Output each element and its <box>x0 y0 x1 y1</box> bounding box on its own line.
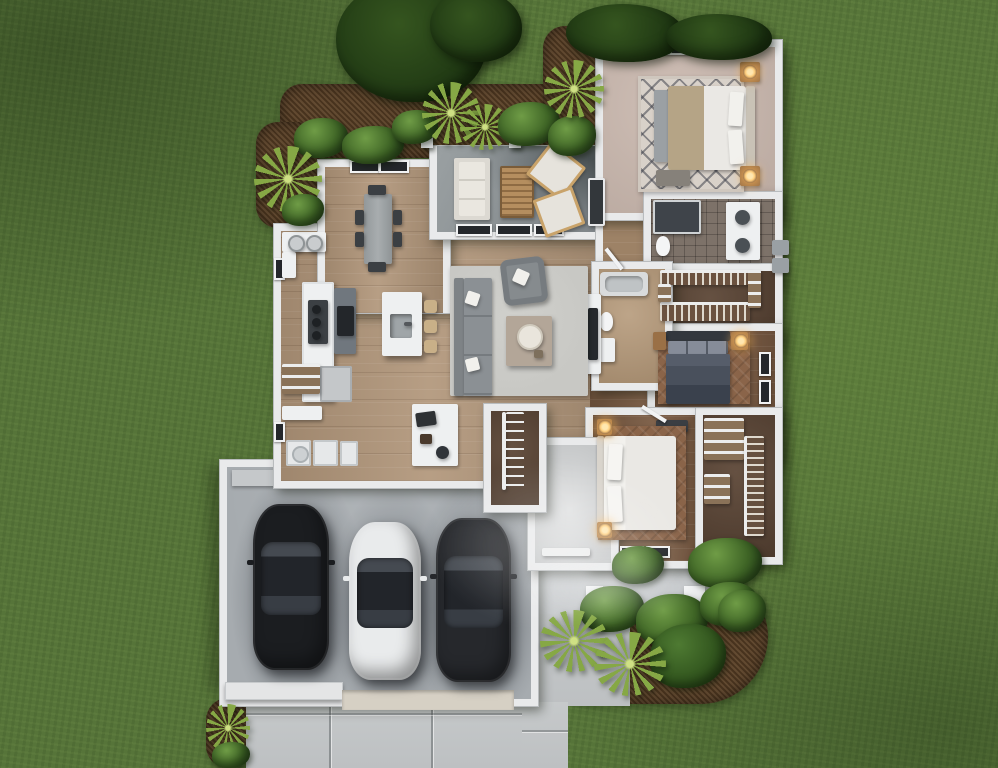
island-sink <box>390 314 412 338</box>
laundry-cabinet <box>340 441 358 466</box>
palm-plant <box>594 632 666 696</box>
driveway-joint-horizontal <box>246 713 528 715</box>
shrub <box>212 742 250 768</box>
bedroom2-headboard <box>666 331 730 341</box>
dining-table <box>364 194 392 264</box>
lamp-glow <box>734 334 748 348</box>
dining-chair <box>368 185 386 195</box>
nightstand <box>653 332 666 350</box>
window <box>759 380 771 404</box>
vanity-sink <box>735 210 750 225</box>
refrigerator <box>320 366 352 402</box>
driveway-joint-vertical <box>329 698 331 768</box>
pillow <box>728 130 744 165</box>
mudroom-bench <box>282 406 322 420</box>
lamp-glow <box>743 169 757 183</box>
sectional-back <box>454 278 464 396</box>
pillow <box>728 92 744 127</box>
window <box>456 224 492 236</box>
bar-counter-return <box>282 252 296 278</box>
toilet <box>600 312 613 331</box>
round-item <box>436 446 449 459</box>
ac-unit <box>772 240 789 255</box>
sidewalk-joint <box>522 730 568 732</box>
table-decor <box>534 350 543 358</box>
round-tray <box>517 324 543 350</box>
basket <box>420 434 432 444</box>
canopy-tree <box>666 14 772 60</box>
closet-shelf-unit <box>704 474 730 504</box>
barstool <box>424 340 437 353</box>
bedroom2-pillows <box>668 341 728 354</box>
pantry-shelves <box>282 364 320 394</box>
shower <box>653 200 701 234</box>
car-mirror <box>247 560 254 565</box>
bedroom2-bed <box>666 354 730 404</box>
dryer <box>313 440 338 466</box>
dining-chair <box>355 210 364 225</box>
burner <box>312 331 321 340</box>
outdoor-sofa-cushions <box>459 162 485 216</box>
tv-panel <box>588 308 598 360</box>
lamp-glow <box>743 65 757 79</box>
sidewalk <box>522 702 568 768</box>
closet-shelf <box>748 270 761 308</box>
dining-chair <box>393 232 402 247</box>
window <box>496 224 532 236</box>
garage-door-single <box>225 682 343 700</box>
washer-door <box>292 446 309 463</box>
closet-shelf-unit <box>704 418 744 460</box>
bag <box>415 411 437 428</box>
garage-door-double-threshold <box>342 690 514 710</box>
barstool <box>424 300 437 313</box>
bar-sink <box>306 235 323 252</box>
closet-rod-clothes <box>660 302 750 321</box>
accent-stool <box>656 170 690 186</box>
car-white <box>349 522 421 680</box>
burner <box>312 318 321 327</box>
lamp-glow <box>598 420 612 434</box>
floor-plan-render <box>0 0 998 768</box>
burner <box>312 305 321 314</box>
vanity <box>600 338 615 362</box>
car-mirror <box>343 576 350 581</box>
car-black <box>253 504 329 670</box>
island-faucet <box>404 322 412 326</box>
bar-sink <box>288 235 305 252</box>
car-white-glass <box>357 558 413 628</box>
sunlight-haze <box>520 552 700 622</box>
closet-shelf <box>658 284 671 302</box>
closet-rod-clothes <box>744 436 764 536</box>
toilet <box>656 236 670 256</box>
window <box>274 422 285 442</box>
ac-unit <box>772 258 789 273</box>
patio-wall-panel <box>588 178 605 226</box>
car-black-glass <box>261 542 320 615</box>
closet-rod-clothes <box>660 270 752 285</box>
dining-chair <box>355 232 364 247</box>
palm-plant <box>544 60 604 118</box>
car-mirror <box>328 560 335 565</box>
barstool <box>424 320 437 333</box>
window <box>759 352 771 376</box>
master-foot-bench <box>654 90 668 162</box>
wall-oven <box>337 306 354 336</box>
vanity-sink <box>735 238 750 253</box>
dining-chair <box>368 262 386 272</box>
dining-chair <box>393 210 402 225</box>
master-headboard <box>746 86 755 170</box>
bathtub-basin <box>605 276 643 292</box>
car-mirror <box>420 576 427 581</box>
